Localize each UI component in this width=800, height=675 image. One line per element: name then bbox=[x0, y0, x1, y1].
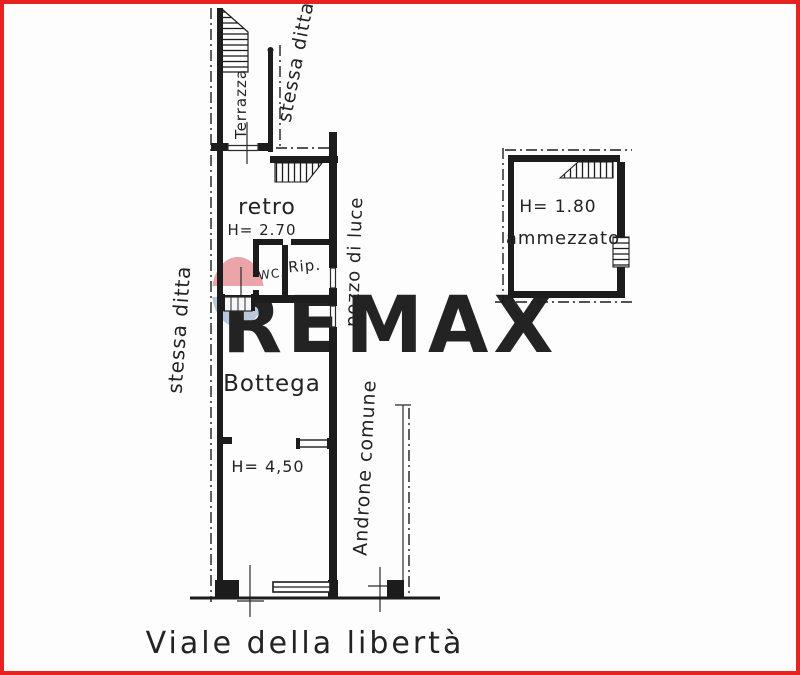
wall-right-lower bbox=[329, 327, 337, 582]
wall-retro-top-b bbox=[258, 143, 272, 151]
label-ammezzato-height: H= 1.80 bbox=[519, 197, 596, 217]
side-door-jamb-right bbox=[251, 294, 255, 311]
label-androne-comune: Androne comune bbox=[349, 379, 380, 556]
label-ammezzato: ammezzato bbox=[506, 228, 620, 249]
amm-wall-top bbox=[508, 155, 620, 162]
label-rip: Rip. bbox=[287, 256, 321, 277]
amm-stair-hatch bbox=[560, 162, 613, 178]
wall-end-dot bbox=[268, 47, 274, 53]
wall-wc-top-a bbox=[253, 239, 283, 245]
amm-wall-bottom bbox=[508, 291, 625, 298]
remax-watermark-text: REMAX bbox=[222, 281, 558, 371]
label-street-name: Viale della libertà bbox=[146, 626, 465, 661]
amm-wall-left bbox=[508, 155, 514, 298]
label-bottega-height: H= 4,50 bbox=[231, 457, 304, 476]
pillar-entrance-right bbox=[387, 580, 404, 598]
label-terrazza: Terrazza bbox=[232, 69, 250, 140]
label-stessa-ditta-top: stessa ditta bbox=[274, 4, 319, 124]
amm-wall-right-upper bbox=[617, 162, 625, 237]
pillar-entrance-left bbox=[215, 580, 239, 598]
entrance-cross-left bbox=[237, 565, 264, 617]
label-stessa-ditta-left: stessa ditta bbox=[163, 265, 196, 395]
wall-right-upper bbox=[329, 132, 337, 268]
floorplan-image: REMAX bbox=[0, 0, 800, 675]
side-door-jamb-left bbox=[221, 294, 225, 311]
wall-notch-left bbox=[222, 437, 232, 444]
wall-retro-top-right bbox=[270, 156, 338, 163]
floor-plan-svg: REMAX bbox=[4, 4, 796, 671]
wall-retro-top-a bbox=[211, 143, 228, 151]
stub-cap-left bbox=[296, 438, 300, 449]
stub-cap-right bbox=[327, 438, 332, 449]
bottega-wall-stub bbox=[298, 440, 330, 447]
ammezzato-room bbox=[508, 155, 629, 298]
label-bottega: Bottega bbox=[223, 371, 321, 397]
label-retro-height: H= 2.70 bbox=[227, 221, 296, 239]
retro-stair-hatch bbox=[275, 163, 322, 182]
terrace-door bbox=[228, 143, 258, 151]
wall-wc-top-b bbox=[291, 239, 337, 245]
wall-terrace-right bbox=[268, 52, 273, 152]
terrace-stair-hatch bbox=[222, 9, 248, 72]
label-retro: retro bbox=[238, 195, 296, 220]
